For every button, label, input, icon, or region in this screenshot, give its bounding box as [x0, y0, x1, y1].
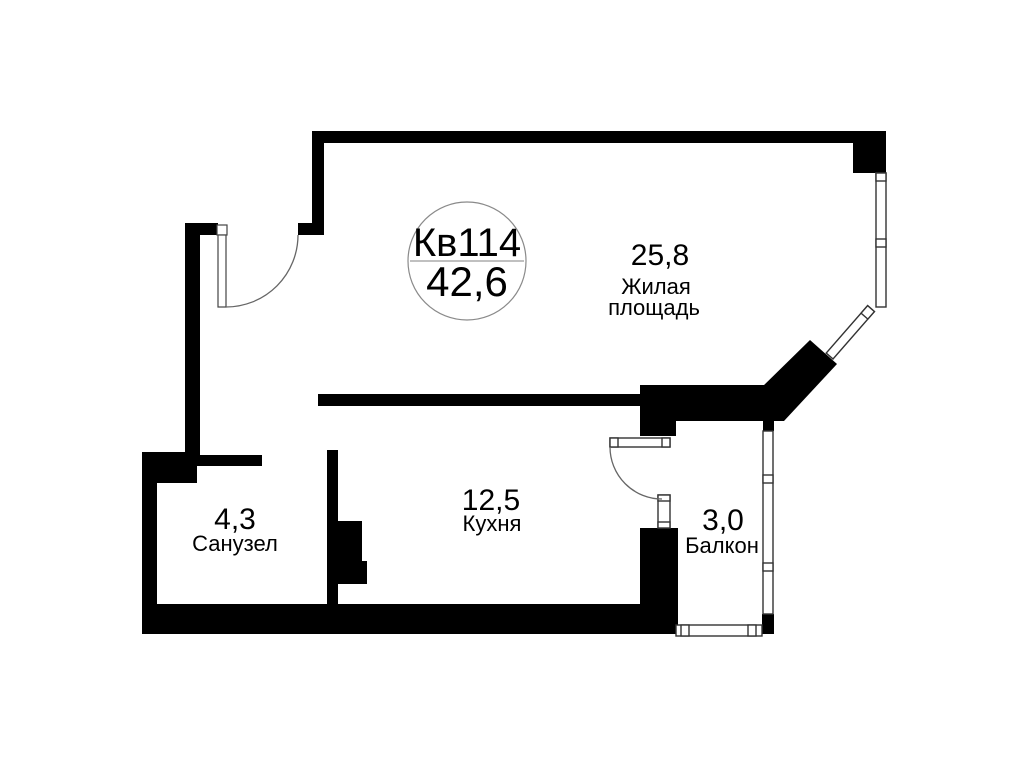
apartment-badge: Кв114 42,6 [408, 202, 526, 320]
wall-balcony-corner [762, 614, 774, 634]
balcony-door-swing-arc [610, 447, 662, 499]
wall-entry-door-jamb-right [298, 223, 324, 235]
wall-living-kitchen [318, 394, 642, 406]
balcony-door-frame [610, 438, 670, 447]
wall-top [312, 131, 855, 143]
wall-balcony-window-cap [763, 417, 774, 431]
balcony-window-bottom-cap-left [681, 625, 689, 636]
walls [142, 131, 886, 634]
wall-bathroom-kitchen [327, 450, 338, 608]
living-room-area: 25,8 [631, 239, 689, 272]
wall-entry-vertical [312, 131, 324, 235]
balcony-door-frame-cap-left [610, 438, 618, 447]
balcony-window-bottom-cap-right [748, 625, 756, 636]
balcony-door-sash-cap-bottom [658, 522, 670, 528]
wall-bathroom-top [195, 455, 262, 466]
balcony-window-right [763, 431, 773, 614]
living-room-name-line2: площадь [608, 295, 700, 320]
entry-door-leaf [218, 235, 226, 307]
wall-diagonal-bay [760, 340, 837, 421]
bay-window-cap-top [876, 173, 886, 181]
floor-plan-drawing: Кв114 42,6 25,8 Жилая площадь 12,5 Кухня… [0, 0, 1024, 768]
balcony-door-frame-cap-right [662, 438, 670, 447]
bay-window-diagonal [826, 306, 874, 359]
wall-balcony-left-pier [640, 528, 678, 634]
wall-left-upper [185, 223, 200, 455]
bay-window-mullion [876, 239, 886, 247]
wall-balcony-top-block [640, 385, 775, 421]
wall-balcony-top-step [640, 421, 676, 436]
wall-pier-top-right [853, 131, 886, 173]
floor-plan-page: Кв114 42,6 25,8 Жилая площадь 12,5 Кухня… [0, 0, 1024, 768]
wall-duct-upper [338, 521, 362, 561]
bathroom-name: Санузел [192, 531, 278, 556]
kitchen-name: Кухня [463, 511, 522, 536]
entry-door-swing-arc [226, 235, 298, 307]
wall-duct-lower [338, 561, 367, 584]
balcony-window-right-mullion-1 [763, 475, 773, 483]
wall-bottom [142, 604, 678, 634]
balcony-name: Балкон [685, 533, 759, 558]
entry-door-hinge-cap [217, 225, 227, 235]
badge-total-area: 42,6 [426, 258, 508, 305]
balcony-door-sash-cap-top [658, 495, 670, 501]
balcony-window-right-mullion-2 [763, 563, 773, 571]
